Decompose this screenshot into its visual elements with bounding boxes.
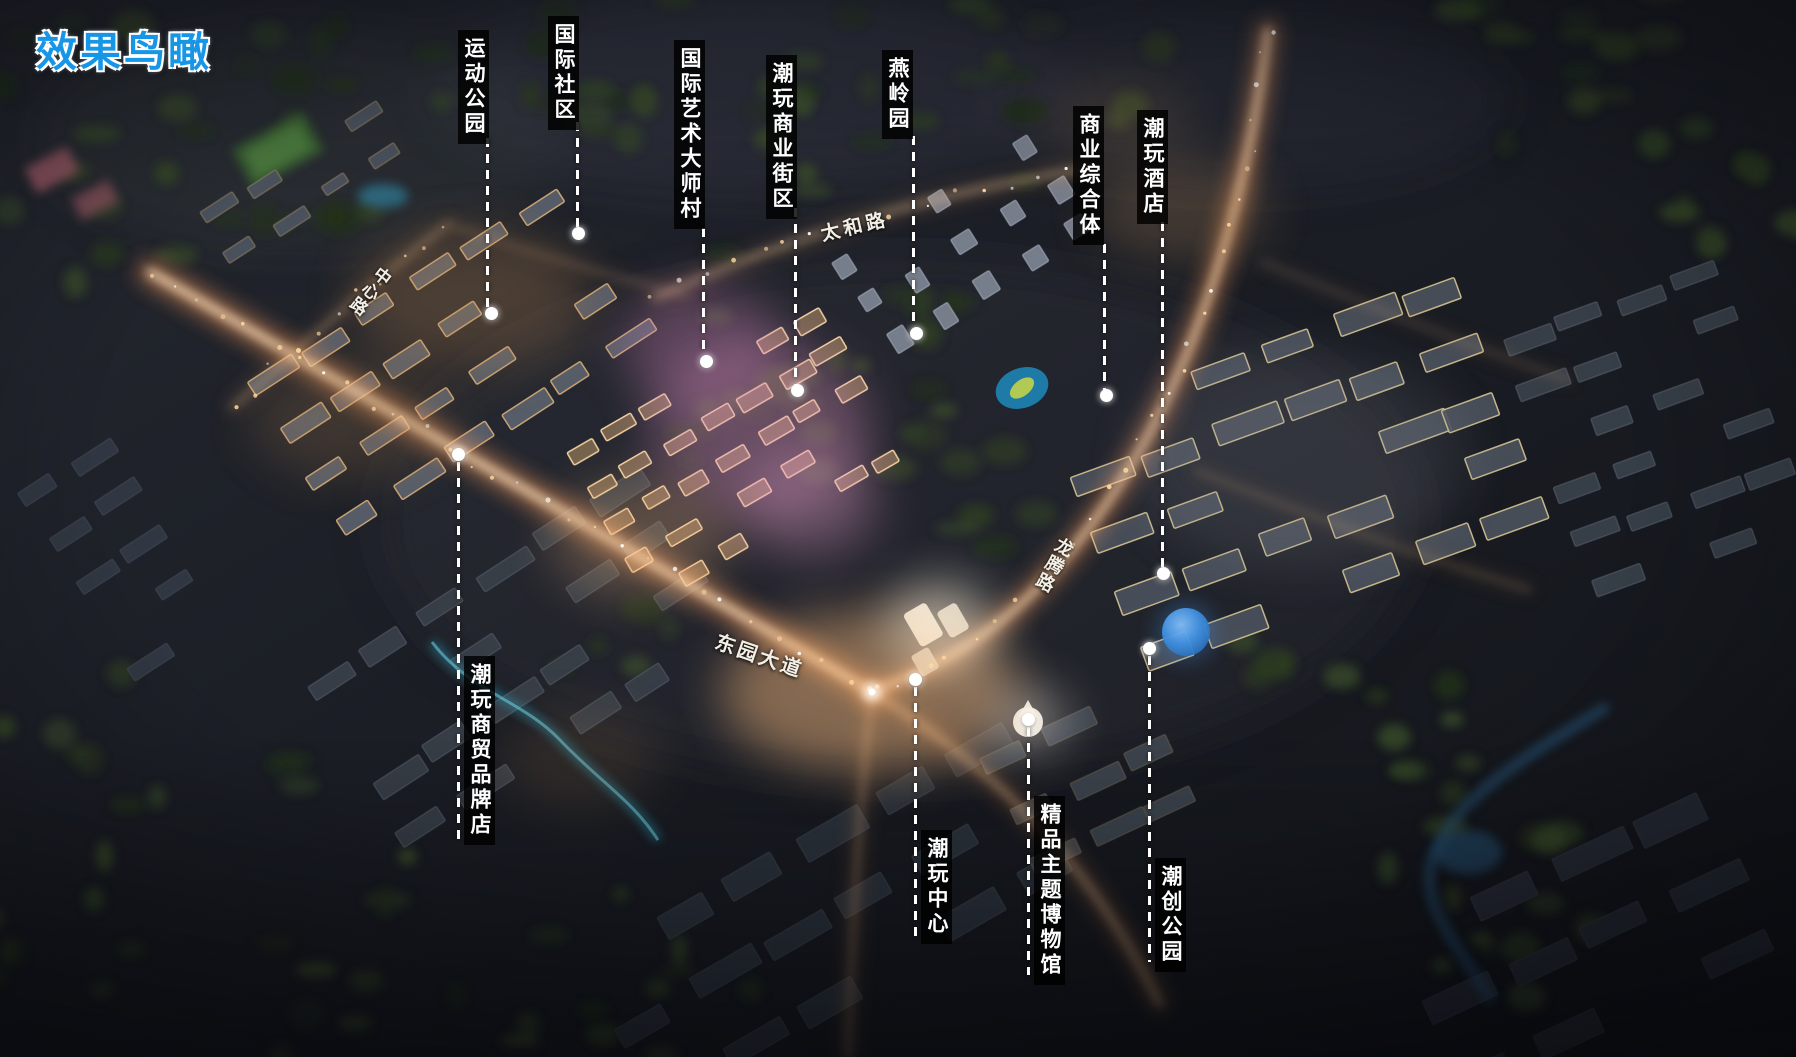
leader-line — [576, 122, 579, 228]
leader-line — [702, 228, 705, 356]
location-marker-dot — [1022, 713, 1035, 726]
location-marker-dot — [1157, 567, 1170, 580]
leader-line — [912, 136, 915, 328]
annotation-label: 商业综合体 — [1073, 106, 1104, 245]
location-marker-dot — [700, 355, 713, 368]
location-marker-dot — [452, 448, 465, 461]
location-marker-dot — [909, 673, 922, 686]
leader-line — [1027, 727, 1030, 975]
leader-line — [486, 138, 489, 308]
aerial-render-scene — [0, 0, 1796, 1057]
annotation-label: 燕岭园 — [882, 50, 913, 139]
annotation-label: 潮玩中心 — [921, 830, 952, 944]
leader-line — [794, 208, 797, 385]
annotation-label: 潮创公园 — [1155, 858, 1186, 972]
leader-line — [1161, 222, 1164, 568]
annotation-label: 运动公园 — [458, 30, 489, 144]
annotation-label: 精品主题博物馆 — [1034, 796, 1065, 985]
leader-line — [914, 687, 917, 939]
leader-line — [1103, 244, 1106, 390]
aerial-masterplan-view: 效果鸟瞰 运动公园 国际社区 国际艺术大师村 潮玩商业街区 燕岭园 商业综合体 … — [0, 0, 1796, 1057]
location-marker-dot — [791, 384, 804, 397]
location-marker-dot — [1100, 389, 1113, 402]
location-marker-dot — [485, 307, 498, 320]
annotation-label: 潮玩商贸品牌店 — [464, 656, 495, 845]
annotation-label: 潮玩商业街区 — [766, 55, 797, 219]
annotation-label: 国际社区 — [548, 16, 579, 130]
annotation-label: 国际艺术大师村 — [674, 40, 705, 229]
leader-line — [457, 462, 460, 840]
leader-line — [1148, 656, 1151, 962]
annotation-label: 潮玩酒店 — [1137, 110, 1168, 224]
page-title: 效果鸟瞰 — [36, 18, 212, 78]
location-marker-dot — [910, 327, 923, 340]
location-marker-dot — [572, 227, 585, 240]
location-marker-dot — [1143, 642, 1156, 655]
